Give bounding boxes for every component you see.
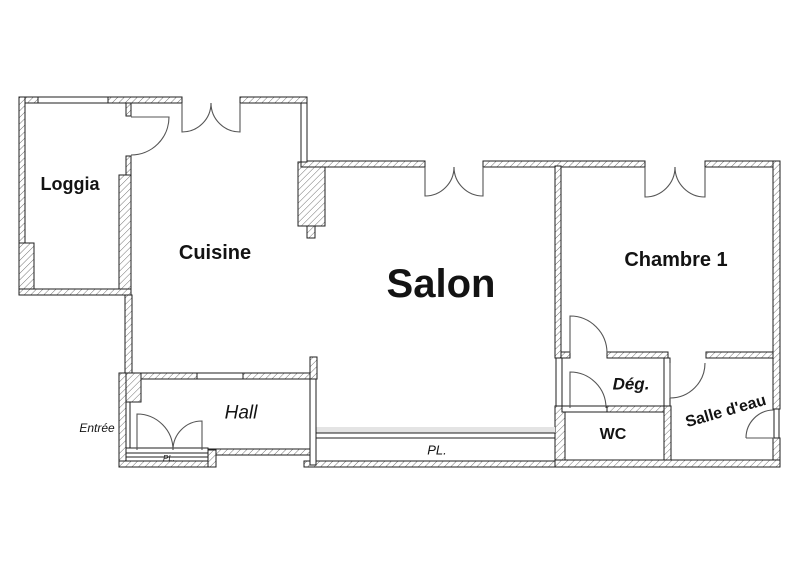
door-salle-deau-right (746, 410, 774, 438)
floor-plan: Loggia Cuisine Salon Chambre 1 Hall Entr… (0, 0, 800, 565)
room-label-cuisine: Cuisine (179, 243, 251, 263)
door-salon-left (425, 167, 454, 196)
room-label-entree: Entrée (79, 422, 114, 434)
door-chambre-window-left (645, 167, 675, 197)
door-entrance-left (137, 414, 173, 450)
door-loggia (131, 117, 169, 155)
room-label-wc: WC (600, 427, 627, 443)
closet-shadow-band (316, 427, 555, 433)
room-label-chambre-1: Chambre 1 (624, 250, 727, 270)
room-label-placard-hall: PL. (163, 455, 175, 463)
room-label-salon: Salon (387, 264, 496, 304)
room-label-hall: Hall (225, 404, 258, 423)
room-label-loggia: Loggia (41, 175, 100, 193)
door-chambre-window-right (675, 167, 705, 197)
door-salle-deau (670, 363, 705, 398)
room-label-placard-salon: PL. (427, 444, 447, 457)
door-cuisine-right (211, 103, 240, 132)
door-salon-right (454, 167, 483, 196)
room-label-degagement: Dég. (613, 376, 650, 393)
door-entrance-right (173, 421, 202, 450)
door-chambre-entry (570, 316, 607, 353)
door-cuisine-left (182, 103, 211, 132)
door-wc (570, 372, 606, 408)
